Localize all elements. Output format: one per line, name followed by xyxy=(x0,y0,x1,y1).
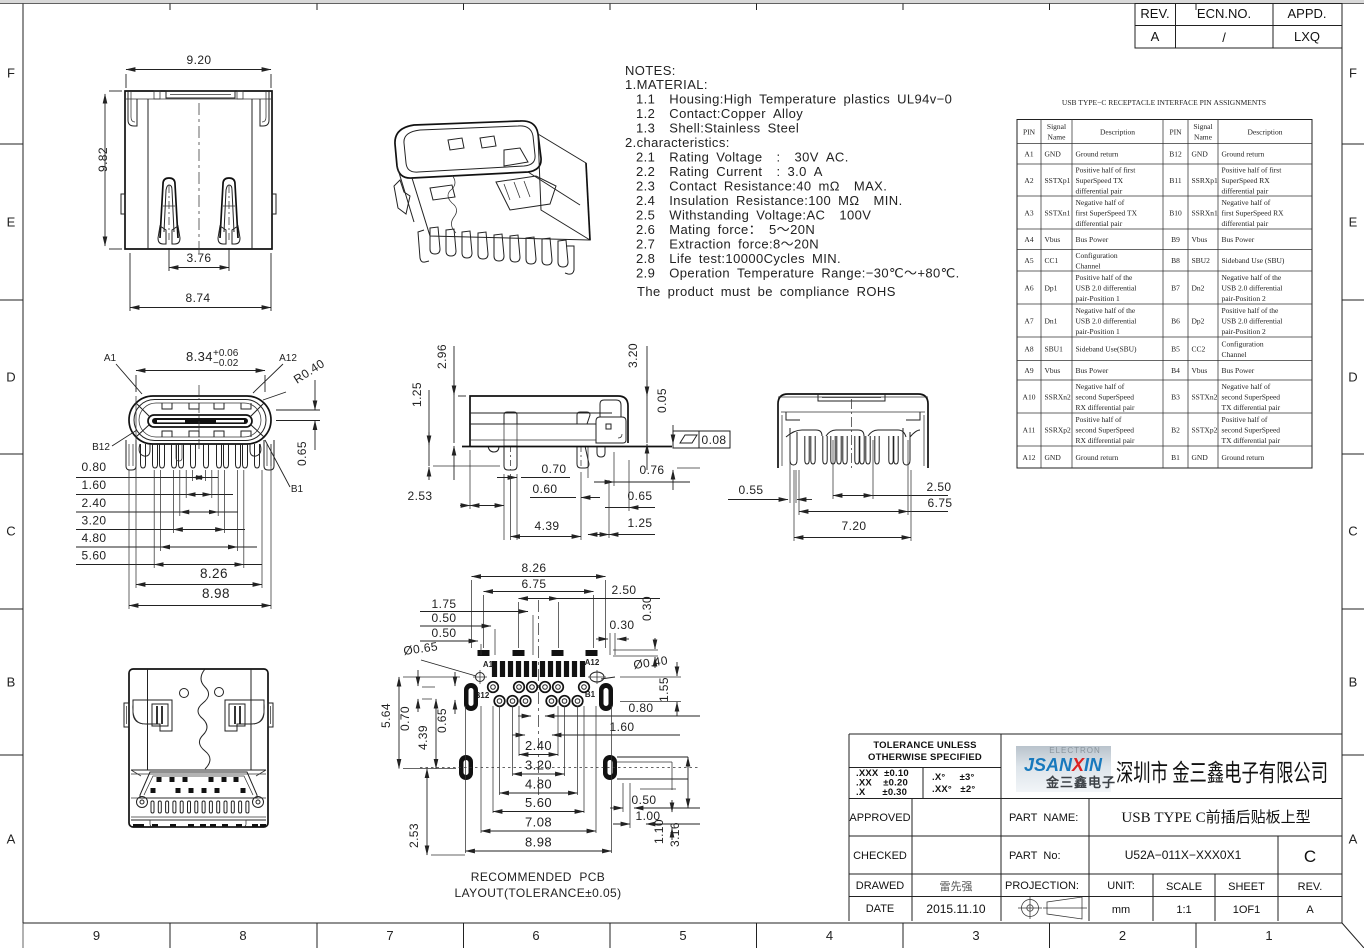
svg-text:1OF1: 1OF1 xyxy=(1233,904,1261,916)
svg-text:2.40: 2.40 xyxy=(525,738,552,753)
svg-text:Ground return: Ground return xyxy=(1076,150,1119,159)
svg-text:.XX° ±2°: .XX° ±2° xyxy=(932,784,975,795)
svg-text:Vbus: Vbus xyxy=(1045,235,1061,244)
svg-text:SSRXp1: SSRXp1 xyxy=(1192,176,1219,185)
svg-text:1.55: 1.55 xyxy=(657,677,671,702)
svg-text:ECN.NO.: ECN.NO. xyxy=(1197,6,1251,21)
svg-text:second SuperSpeed: second SuperSpeed xyxy=(1076,425,1135,434)
svg-text:pair-Position 1: pair-Position 1 xyxy=(1076,327,1120,336)
svg-text:1.3 Shell:Stainless Steel: 1.3 Shell:Stainless Steel xyxy=(636,121,799,136)
svg-text:A3: A3 xyxy=(1024,208,1033,217)
svg-text:Negative half of: Negative half of xyxy=(1222,198,1271,207)
svg-text:TX differential pair: TX differential pair xyxy=(1222,403,1281,412)
svg-text:B11: B11 xyxy=(1169,176,1181,185)
svg-text:−0.02: −0.02 xyxy=(213,358,239,369)
svg-text:USB TYPE−C RECEPTACLE INTERFAC: USB TYPE−C RECEPTACLE INTERFACE PIN ASSI… xyxy=(1062,98,1266,107)
svg-text:Positive half of first: Positive half of first xyxy=(1222,165,1283,174)
svg-text:Bus Power: Bus Power xyxy=(1222,235,1255,244)
svg-text:The product must be compliance: The product must be compliance ROHS xyxy=(637,284,896,299)
svg-text:B: B xyxy=(1349,675,1358,690)
svg-text:0.50: 0.50 xyxy=(432,611,457,625)
svg-text:A7: A7 xyxy=(1024,316,1033,325)
svg-text:2.50: 2.50 xyxy=(927,480,952,494)
svg-text:2.4 Insulation Resistance:100: 2.4 Insulation Resistance:100 MΩ MIN. xyxy=(636,193,903,208)
svg-text:金三鑫电子: 金三鑫电子 xyxy=(1045,775,1116,790)
svg-text:SBU2: SBU2 xyxy=(1192,256,1211,265)
svg-text:Vbus: Vbus xyxy=(1192,366,1208,375)
svg-text:.X ±0.30: .X ±0.30 xyxy=(856,787,907,798)
svg-text:Bus Power: Bus Power xyxy=(1222,366,1255,375)
svg-text:1.60: 1.60 xyxy=(82,478,107,492)
svg-text:differential pair: differential pair xyxy=(1076,186,1123,195)
svg-text:0.60: 0.60 xyxy=(533,482,558,496)
svg-text:A2: A2 xyxy=(1024,176,1033,185)
svg-text:PROJECTION:: PROJECTION: xyxy=(1005,880,1079,892)
svg-text:LAYOUT(TOLERANCE±0.05): LAYOUT(TOLERANCE±0.05) xyxy=(455,886,622,900)
svg-text:1.2 Contact:Copper Alloy: 1.2 Contact:Copper Alloy xyxy=(636,106,803,121)
svg-text:3.20: 3.20 xyxy=(525,758,552,773)
svg-text:0.80: 0.80 xyxy=(629,701,654,715)
svg-text:F: F xyxy=(1349,66,1357,81)
svg-text:4: 4 xyxy=(826,928,833,943)
svg-text:Description: Description xyxy=(1248,127,1283,136)
svg-text:B4: B4 xyxy=(1171,366,1180,375)
svg-text:2.8 Life test:10000Cycles MIN: 2.8 Life test:10000Cycles MIN. xyxy=(636,251,841,266)
svg-text:Positive half of: Positive half of xyxy=(1222,415,1268,424)
svg-text:3.20: 3.20 xyxy=(626,343,640,368)
svg-text:Ground return: Ground return xyxy=(1222,150,1265,159)
svg-text:Channel: Channel xyxy=(1222,350,1247,359)
svg-text:second SuperSpeed: second SuperSpeed xyxy=(1076,392,1135,401)
svg-text:pair-Position 1: pair-Position 1 xyxy=(1076,294,1120,303)
svg-text:C: C xyxy=(6,524,15,539)
svg-text:A: A xyxy=(1151,29,1160,44)
svg-text:Negative half of: Negative half of xyxy=(1076,382,1125,391)
svg-text:GND: GND xyxy=(1192,453,1209,462)
svg-text:A: A xyxy=(7,832,16,847)
svg-text:0.65: 0.65 xyxy=(295,441,309,466)
svg-text:1.1 Housing:High Temperature: 1.1 Housing:High Temperature plastics UL… xyxy=(636,92,952,107)
svg-text:4.39: 4.39 xyxy=(535,519,560,533)
svg-text:A10: A10 xyxy=(1023,392,1036,401)
svg-text:1.10: 1.10 xyxy=(652,819,666,844)
svg-text:F: F xyxy=(7,66,15,81)
svg-text:A: A xyxy=(1306,904,1314,916)
svg-text:1: 1 xyxy=(1265,928,1272,943)
svg-text:9.20: 9.20 xyxy=(187,53,212,67)
svg-text:A12: A12 xyxy=(1023,453,1036,462)
svg-text:A11: A11 xyxy=(1023,425,1036,434)
svg-text:5.60: 5.60 xyxy=(82,549,107,563)
svg-text:8.26: 8.26 xyxy=(522,561,547,575)
svg-text:DRAWED: DRAWED xyxy=(856,880,905,892)
svg-text:2: 2 xyxy=(1119,928,1126,943)
svg-text:APPROVED: APPROVED xyxy=(849,812,910,824)
svg-text:UNIT:: UNIT: xyxy=(1107,880,1135,892)
svg-text:3.20: 3.20 xyxy=(82,514,107,528)
svg-text:second SuperSpeed: second SuperSpeed xyxy=(1222,392,1281,401)
svg-text:Positive half of the: Positive half of the xyxy=(1076,273,1134,282)
svg-text:8.26: 8.26 xyxy=(200,566,228,581)
svg-text:Ground return: Ground return xyxy=(1222,453,1265,462)
svg-text:1.75: 1.75 xyxy=(432,597,457,611)
svg-text:first SuperSpeed RX: first SuperSpeed RX xyxy=(1222,208,1285,217)
svg-text:5: 5 xyxy=(679,928,686,943)
svg-text:0.65: 0.65 xyxy=(628,489,653,503)
svg-text:E: E xyxy=(7,215,16,230)
svg-text:4.80: 4.80 xyxy=(82,531,107,545)
svg-text:Positive half of: Positive half of xyxy=(1076,415,1122,424)
svg-text:2.7 Extraction force:8～20N: 2.7 Extraction force:8～20N xyxy=(636,237,819,252)
svg-text:Vbus: Vbus xyxy=(1045,366,1061,375)
svg-text:2.2 Rating Current : 3.0 A: 2.2 Rating Current : 3.0 A xyxy=(636,164,823,179)
svg-text:second SuperSpeed: second SuperSpeed xyxy=(1222,425,1281,434)
svg-text:8.34: 8.34 xyxy=(186,349,213,364)
svg-text:TOLERANCE UNLESS: TOLERANCE UNLESS xyxy=(873,740,976,751)
svg-text:SSRXn2: SSRXn2 xyxy=(1045,392,1072,401)
svg-text:8.98: 8.98 xyxy=(525,835,552,850)
svg-text:6: 6 xyxy=(532,928,539,943)
svg-text:.X° ±3°: .X° ±3° xyxy=(932,772,974,783)
svg-text:differential pair: differential pair xyxy=(1222,219,1269,228)
svg-text:0.76: 0.76 xyxy=(640,463,665,477)
svg-text:SCALE: SCALE xyxy=(1166,881,1202,893)
svg-text:C: C xyxy=(1304,847,1316,866)
svg-text:Description: Description xyxy=(1100,127,1135,136)
svg-text:B7: B7 xyxy=(1171,283,1180,292)
svg-text:9: 9 xyxy=(93,928,100,943)
svg-text:2015.11.10: 2015.11.10 xyxy=(926,902,985,916)
svg-text:1.25: 1.25 xyxy=(410,382,424,407)
svg-text:B12: B12 xyxy=(92,442,110,453)
svg-text:2.5 Withstanding Voltage:AC: 2.5 Withstanding Voltage:AC 100V xyxy=(636,208,871,223)
svg-text:2.50: 2.50 xyxy=(612,583,637,597)
svg-text:B1: B1 xyxy=(1171,453,1180,462)
svg-text:PIN: PIN xyxy=(1169,127,1182,136)
svg-text:A1: A1 xyxy=(483,660,494,669)
svg-text:B: B xyxy=(7,675,16,690)
svg-text:SuperSpeed RX: SuperSpeed RX xyxy=(1222,176,1271,185)
svg-text:Vbus: Vbus xyxy=(1192,235,1208,244)
svg-text:1.MATERIAL:: 1.MATERIAL: xyxy=(625,77,708,92)
svg-text:SSTXp2: SSTXp2 xyxy=(1192,425,1218,434)
svg-text:Positive half of the: Positive half of the xyxy=(1222,306,1280,315)
svg-text:0.50: 0.50 xyxy=(632,793,657,807)
svg-text:0.30: 0.30 xyxy=(640,596,654,621)
svg-text:REV.: REV. xyxy=(1140,6,1169,21)
svg-text:TX differential pair: TX differential pair xyxy=(1222,436,1281,445)
svg-text:USB TYPE C前插后贴板上型: USB TYPE C前插后贴板上型 xyxy=(1121,808,1310,826)
svg-text:USB 2.0 differential: USB 2.0 differential xyxy=(1076,316,1137,325)
svg-text:Sideband Use(SBU): Sideband Use(SBU) xyxy=(1076,345,1138,354)
svg-text:5.60: 5.60 xyxy=(525,795,552,810)
svg-text:differential pair: differential pair xyxy=(1222,186,1269,195)
svg-text:1.60: 1.60 xyxy=(610,720,635,734)
svg-text:4.80: 4.80 xyxy=(525,777,552,792)
svg-text:A: A xyxy=(1349,832,1358,847)
svg-text:Negative half of the: Negative half of the xyxy=(1076,306,1136,315)
svg-text:5.64: 5.64 xyxy=(379,703,393,728)
svg-text:9.82: 9.82 xyxy=(96,147,110,172)
svg-text:B5: B5 xyxy=(1171,345,1180,354)
svg-text:SBU1: SBU1 xyxy=(1045,345,1064,354)
svg-text:DATE: DATE xyxy=(866,903,895,915)
svg-text:GND: GND xyxy=(1045,453,1062,462)
svg-text:0.65: 0.65 xyxy=(435,708,449,733)
svg-text:8: 8 xyxy=(239,928,246,943)
svg-text:Name: Name xyxy=(1194,133,1213,142)
svg-text:RX differential pair: RX differential pair xyxy=(1076,403,1136,412)
svg-text:B8: B8 xyxy=(1171,256,1180,265)
svg-text:8.74: 8.74 xyxy=(186,291,211,305)
svg-text:Ground return: Ground return xyxy=(1076,453,1119,462)
svg-text:Configuration: Configuration xyxy=(1222,339,1264,348)
svg-text:LXQ: LXQ xyxy=(1294,29,1320,44)
svg-text:2.9 Operation Temperature Ran: 2.9 Operation Temperature Range:−30℃～+80… xyxy=(636,266,960,281)
svg-text:8.98: 8.98 xyxy=(202,586,230,601)
svg-text:RX differential pair: RX differential pair xyxy=(1076,436,1136,445)
svg-text:A9: A9 xyxy=(1024,366,1033,375)
svg-text:Signal: Signal xyxy=(1193,122,1212,131)
svg-text:Dn2: Dn2 xyxy=(1192,283,1205,292)
svg-text:1:1: 1:1 xyxy=(1176,904,1191,916)
svg-text:Configuration: Configuration xyxy=(1076,251,1118,260)
svg-text:2.40: 2.40 xyxy=(82,496,107,510)
svg-text:3.16: 3.16 xyxy=(668,822,682,847)
svg-text:Name: Name xyxy=(1048,133,1067,142)
svg-text:PART No:: PART No: xyxy=(1009,850,1061,862)
svg-text:GND: GND xyxy=(1192,150,1209,159)
svg-text:SSTXn1: SSTXn1 xyxy=(1045,208,1071,217)
svg-text:SSTXp1: SSTXp1 xyxy=(1045,176,1071,185)
svg-text:深圳市 金三鑫电子有限公司: 深圳市 金三鑫电子有限公司 xyxy=(1116,760,1328,787)
svg-text:ELECTRON: ELECTRON xyxy=(1049,746,1101,755)
svg-text:2.3 Contact Resistance:40 mΩ: 2.3 Contact Resistance:40 mΩ MAX. xyxy=(636,179,887,194)
svg-text:Negative half of: Negative half of xyxy=(1222,382,1271,391)
svg-text:B2: B2 xyxy=(1171,425,1180,434)
svg-text:PIN: PIN xyxy=(1023,127,1036,136)
svg-text:Dp2: Dp2 xyxy=(1192,316,1205,325)
svg-text:1.25: 1.25 xyxy=(628,516,653,530)
svg-text:0.70: 0.70 xyxy=(398,706,412,731)
svg-text:Signal: Signal xyxy=(1047,122,1066,131)
svg-text:B6: B6 xyxy=(1171,316,1180,325)
svg-text:pair-Position 2: pair-Position 2 xyxy=(1222,327,1266,336)
svg-text:SHEET: SHEET xyxy=(1228,881,1265,893)
svg-text:B12: B12 xyxy=(1169,150,1182,159)
svg-text:CHECKED: CHECKED xyxy=(853,850,907,862)
svg-text:CC1: CC1 xyxy=(1045,256,1059,265)
svg-text:SSTXn2: SSTXn2 xyxy=(1192,392,1218,401)
svg-text:first SuperSpeed TX: first SuperSpeed TX xyxy=(1076,208,1138,217)
svg-text:6.75: 6.75 xyxy=(522,577,547,591)
svg-text:JSANXIN: JSANXIN xyxy=(1024,755,1103,775)
svg-text:A1: A1 xyxy=(104,353,117,364)
svg-text:A6: A6 xyxy=(1024,283,1033,292)
svg-text:6.75: 6.75 xyxy=(928,496,953,510)
svg-text:Negative half of the: Negative half of the xyxy=(1222,273,1282,282)
svg-text:3.76: 3.76 xyxy=(187,251,212,265)
svg-text:雷先强: 雷先强 xyxy=(940,880,973,893)
svg-text:C: C xyxy=(1348,524,1357,539)
svg-text:B3: B3 xyxy=(1171,392,1180,401)
svg-text:A5: A5 xyxy=(1024,256,1033,265)
svg-text:differential pair: differential pair xyxy=(1076,219,1123,228)
svg-text:A12: A12 xyxy=(585,658,600,667)
svg-text:4.39: 4.39 xyxy=(416,725,430,750)
svg-text:Channel: Channel xyxy=(1076,261,1101,270)
svg-text:mm: mm xyxy=(1112,904,1130,916)
svg-text:GND: GND xyxy=(1045,150,1062,159)
svg-text:USB 2.0 differential: USB 2.0 differential xyxy=(1222,316,1283,325)
svg-text:NOTES:: NOTES: xyxy=(625,63,676,78)
svg-text:Negative half of: Negative half of xyxy=(1076,198,1125,207)
svg-text:PART NAME:: PART NAME: xyxy=(1009,812,1078,824)
svg-text:pair-Position 2: pair-Position 2 xyxy=(1222,294,1266,303)
svg-text:2.53: 2.53 xyxy=(407,823,421,848)
svg-text:Positive half of first: Positive half of first xyxy=(1076,165,1137,174)
svg-text:2.1 Rating Voltage : 30V AC: 2.1 Rating Voltage : 30V AC. xyxy=(636,150,849,165)
svg-text:D: D xyxy=(6,370,15,385)
svg-text:A12: A12 xyxy=(279,353,297,364)
svg-text:0.30: 0.30 xyxy=(610,618,635,632)
svg-text:0.55: 0.55 xyxy=(739,483,764,497)
svg-text:7: 7 xyxy=(386,928,393,943)
svg-text:/: / xyxy=(1222,30,1226,45)
svg-text:U52A−011X−XXX0X1: U52A−011X−XXX0X1 xyxy=(1125,848,1242,862)
svg-text:7.20: 7.20 xyxy=(842,519,867,533)
svg-text:USB 2.0 differential: USB 2.0 differential xyxy=(1222,283,1283,292)
svg-text:REV.: REV. xyxy=(1298,881,1323,893)
svg-text:SSRXp2: SSRXp2 xyxy=(1045,425,1072,434)
svg-text:OTHERWISE SPECIFIED: OTHERWISE SPECIFIED xyxy=(868,752,982,763)
svg-text:Dp1: Dp1 xyxy=(1045,283,1058,292)
svg-text:2.53: 2.53 xyxy=(408,489,433,503)
svg-text:Sideband Use (SBU): Sideband Use (SBU) xyxy=(1222,256,1285,265)
svg-text:3: 3 xyxy=(972,928,979,943)
svg-text:7.08: 7.08 xyxy=(525,815,552,830)
svg-text:SSRXn1: SSRXn1 xyxy=(1192,208,1219,217)
svg-text:Bus Power: Bus Power xyxy=(1076,366,1109,375)
svg-text:Bus Power: Bus Power xyxy=(1076,235,1109,244)
svg-text:B9: B9 xyxy=(1171,235,1180,244)
svg-text:0.50: 0.50 xyxy=(432,626,457,640)
svg-text:Dn1: Dn1 xyxy=(1045,316,1058,325)
svg-text:APPD.: APPD. xyxy=(1287,6,1326,21)
svg-text:CC2: CC2 xyxy=(1192,345,1206,354)
svg-text:A4: A4 xyxy=(1024,235,1033,244)
svg-text:A1: A1 xyxy=(1024,150,1033,159)
svg-text:SuperSpeed TX: SuperSpeed TX xyxy=(1076,176,1124,185)
svg-text:0.08: 0.08 xyxy=(702,433,727,447)
svg-text:2.6 Mating force： 5～20N: 2.6 Mating force： 5～20N xyxy=(636,222,815,237)
svg-text:RECOMMENDED PCB: RECOMMENDED PCB xyxy=(471,870,605,884)
svg-text:USB 2.0 differential: USB 2.0 differential xyxy=(1076,283,1137,292)
svg-text:0.80: 0.80 xyxy=(82,460,107,474)
svg-text:0.05: 0.05 xyxy=(655,388,669,413)
svg-text:E: E xyxy=(1349,215,1358,230)
svg-text:2.characteristics:: 2.characteristics: xyxy=(625,135,730,150)
svg-text:B1: B1 xyxy=(291,484,304,495)
svg-text:D: D xyxy=(1348,370,1357,385)
svg-text:2.96: 2.96 xyxy=(435,344,449,369)
svg-text:B10: B10 xyxy=(1169,208,1182,217)
svg-text:A8: A8 xyxy=(1024,345,1033,354)
svg-text:0.70: 0.70 xyxy=(542,462,567,476)
